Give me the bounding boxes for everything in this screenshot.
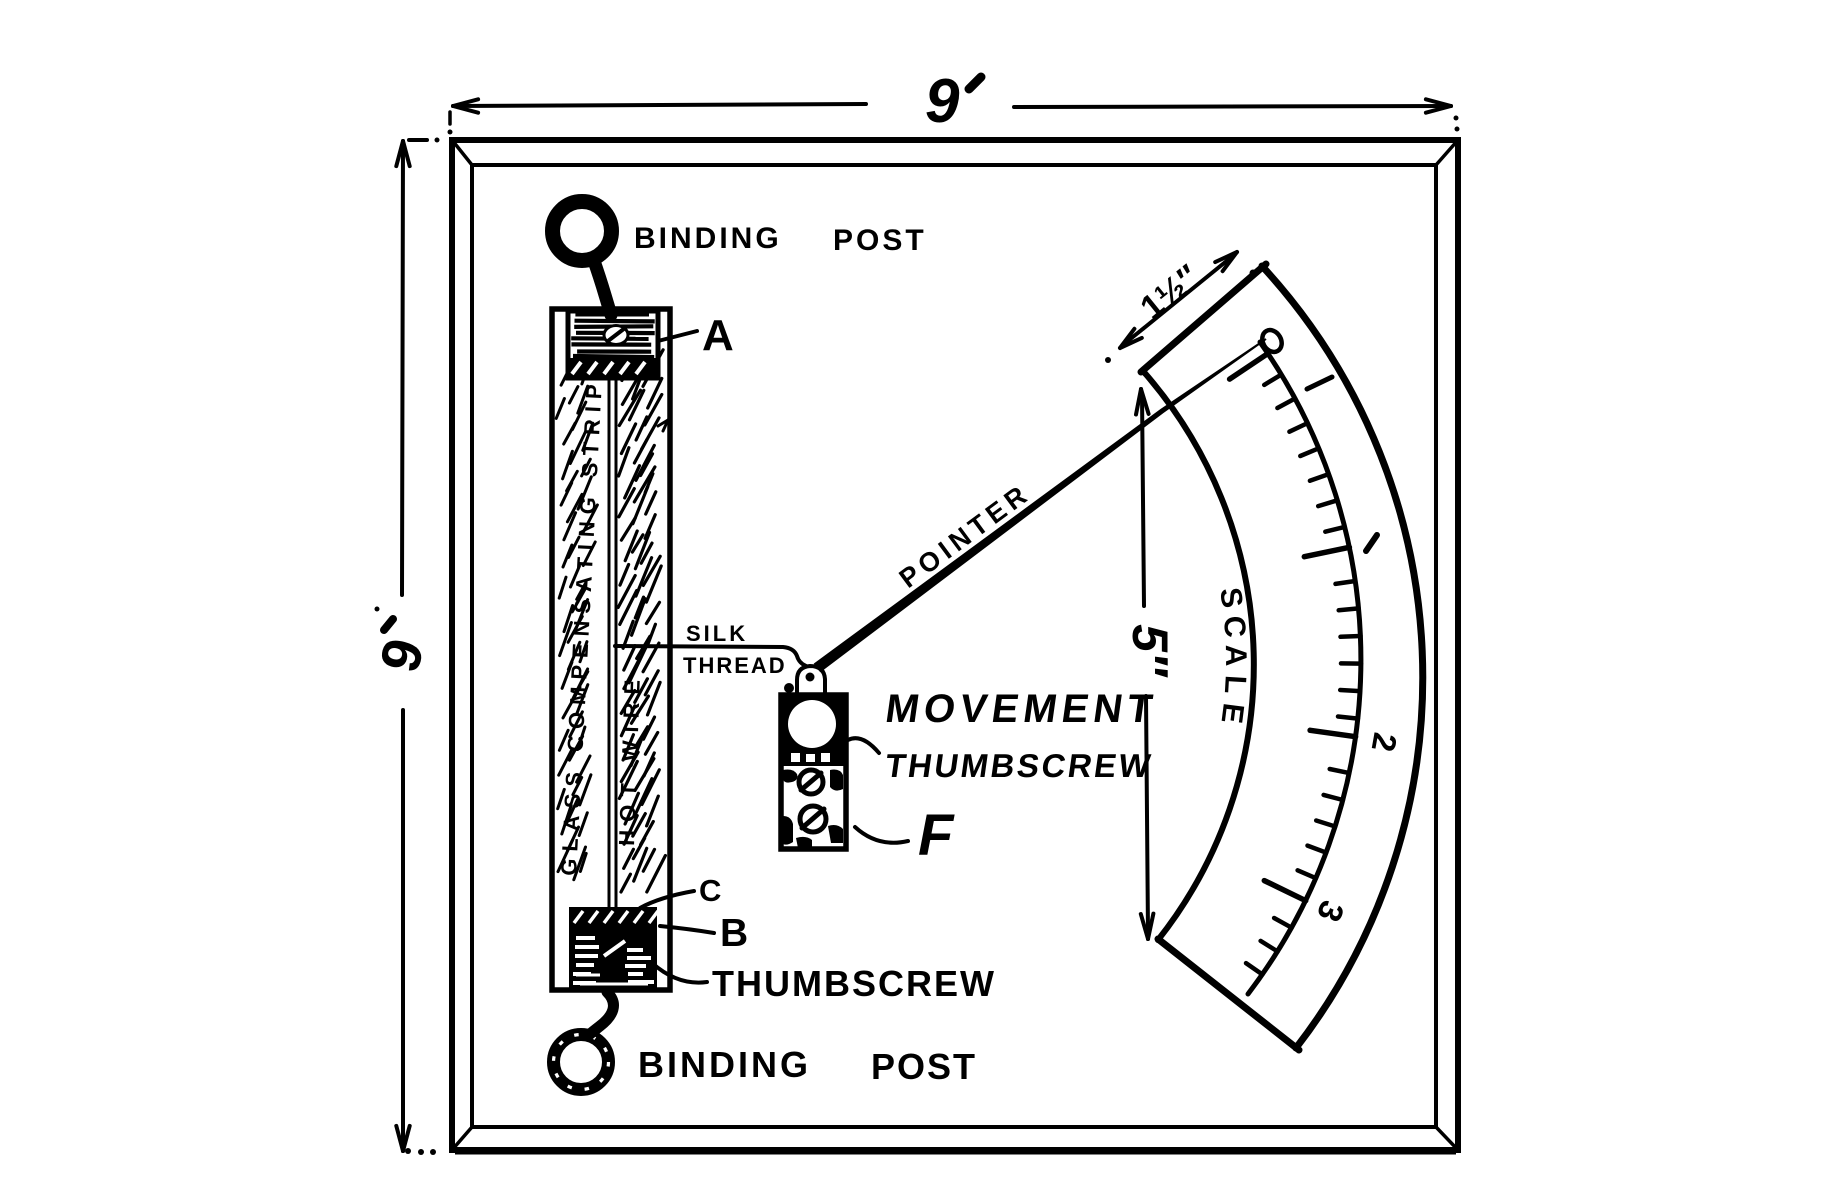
svg-text:B: B (720, 912, 748, 955)
svg-text:BINDING: BINDING (634, 222, 782, 255)
svg-text:THUMBSCREW: THUMBSCREW (883, 748, 1155, 785)
svg-text:THUMBSCREW: THUMBSCREW (712, 963, 996, 1004)
svg-text:A: A (1219, 644, 1252, 666)
svg-text:SILK: SILK (686, 621, 748, 646)
svg-text:POST: POST (833, 224, 927, 257)
svg-text:C: C (1217, 615, 1252, 639)
svg-text:L: L (1218, 674, 1252, 694)
svg-text:A: A (702, 311, 734, 360)
svg-text:POST: POST (871, 1046, 977, 1087)
svg-text:9: 9 (925, 67, 960, 136)
svg-text:5″: 5″ (1122, 624, 1178, 678)
svg-text:THREAD: THREAD (683, 653, 787, 678)
svg-text:F: F (918, 803, 955, 868)
svg-text:E: E (1215, 701, 1250, 725)
svg-text:C: C (699, 873, 721, 908)
svg-text:BINDING: BINDING (638, 1044, 811, 1085)
svg-text:MOVEMENT: MOVEMENT (883, 686, 1160, 731)
